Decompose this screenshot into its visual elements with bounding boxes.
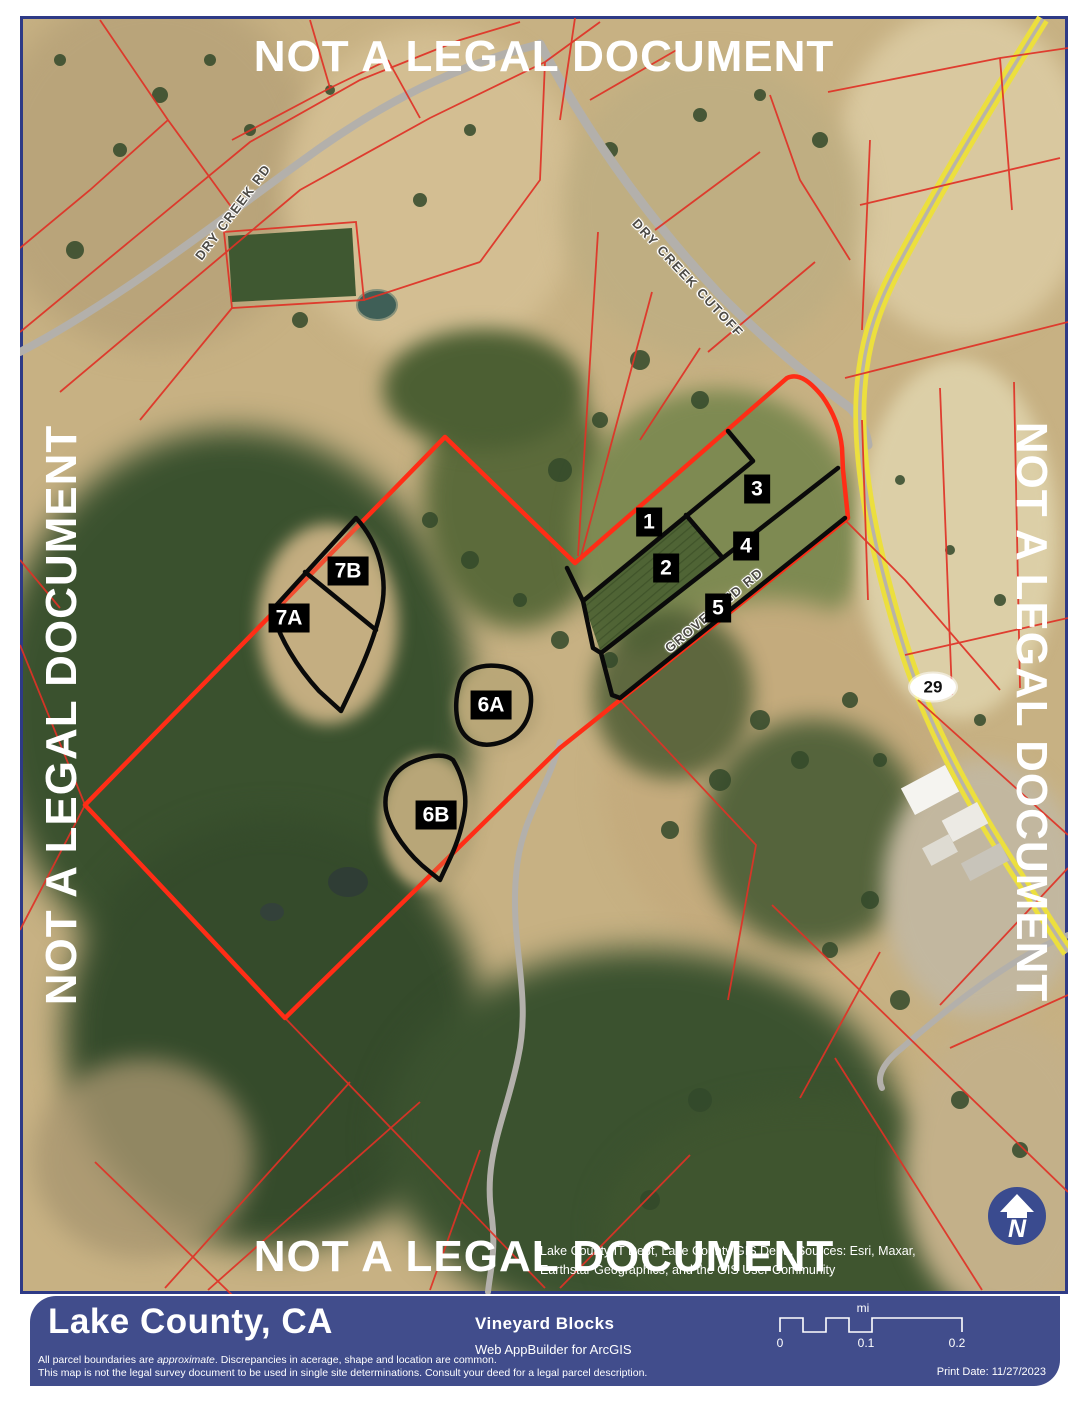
block-label-7b: 7B: [328, 557, 369, 586]
pond: [328, 867, 368, 897]
attribution-line1: Lake County IT Dept, Lake County GIS Dep…: [540, 1242, 916, 1261]
disclaimer: All parcel boundaries are approximate. D…: [38, 1354, 647, 1380]
scale-bar: mi 0 0.1 0.2: [745, 1302, 1005, 1360]
scale-tick-01: 0.1: [858, 1336, 875, 1350]
footer-bar: Lake County, CA All parcel boundaries ar…: [30, 1296, 1060, 1386]
block-label-1: 1: [636, 508, 662, 537]
print-map-page: 1 2 3 4 5 6A 6B 7A 7B DRY CREEK RD DRY C…: [0, 0, 1088, 1408]
block-label-7a: 7A: [269, 604, 310, 633]
map-title: Vineyard Blocks: [475, 1314, 614, 1334]
map-overlay-graphics: [20, 16, 1068, 1294]
pond: [260, 903, 284, 921]
print-date: Print Date: 11/27/2023: [937, 1366, 1046, 1378]
scale-tick-02: 0.2: [949, 1336, 966, 1350]
block-label-2: 2: [653, 554, 679, 583]
watermark-top: NOT A LEGAL DOCUMENT: [254, 32, 835, 82]
county-title: Lake County, CA: [48, 1302, 333, 1342]
attribution-line2: Earthstar Geographics, and the GIS User …: [540, 1261, 916, 1280]
block-label-6a: 6A: [471, 691, 512, 720]
block-label-4: 4: [733, 532, 759, 561]
scale-unit: mi: [857, 1302, 870, 1315]
north-arrow: N: [988, 1187, 1046, 1245]
scale-tick-0: 0: [777, 1336, 784, 1350]
disclaimer-line2: This map is not the legal survey documen…: [38, 1367, 647, 1380]
block-label-6b: 6B: [416, 801, 457, 830]
map-attribution: Lake County IT Dept, Lake County GIS Dep…: [540, 1242, 916, 1280]
north-letter: N: [1008, 1215, 1027, 1243]
map-subtitle: Web AppBuilder for ArcGIS: [475, 1342, 632, 1357]
watermark-right: NOT A LEGAL DOCUMENT: [1006, 422, 1056, 1003]
block-label-5: 5: [705, 594, 731, 623]
watermark-left: NOT A LEGAL DOCUMENT: [37, 425, 87, 1006]
highway-29-shield: 29: [910, 674, 956, 701]
block-label-3: 3: [744, 475, 770, 504]
